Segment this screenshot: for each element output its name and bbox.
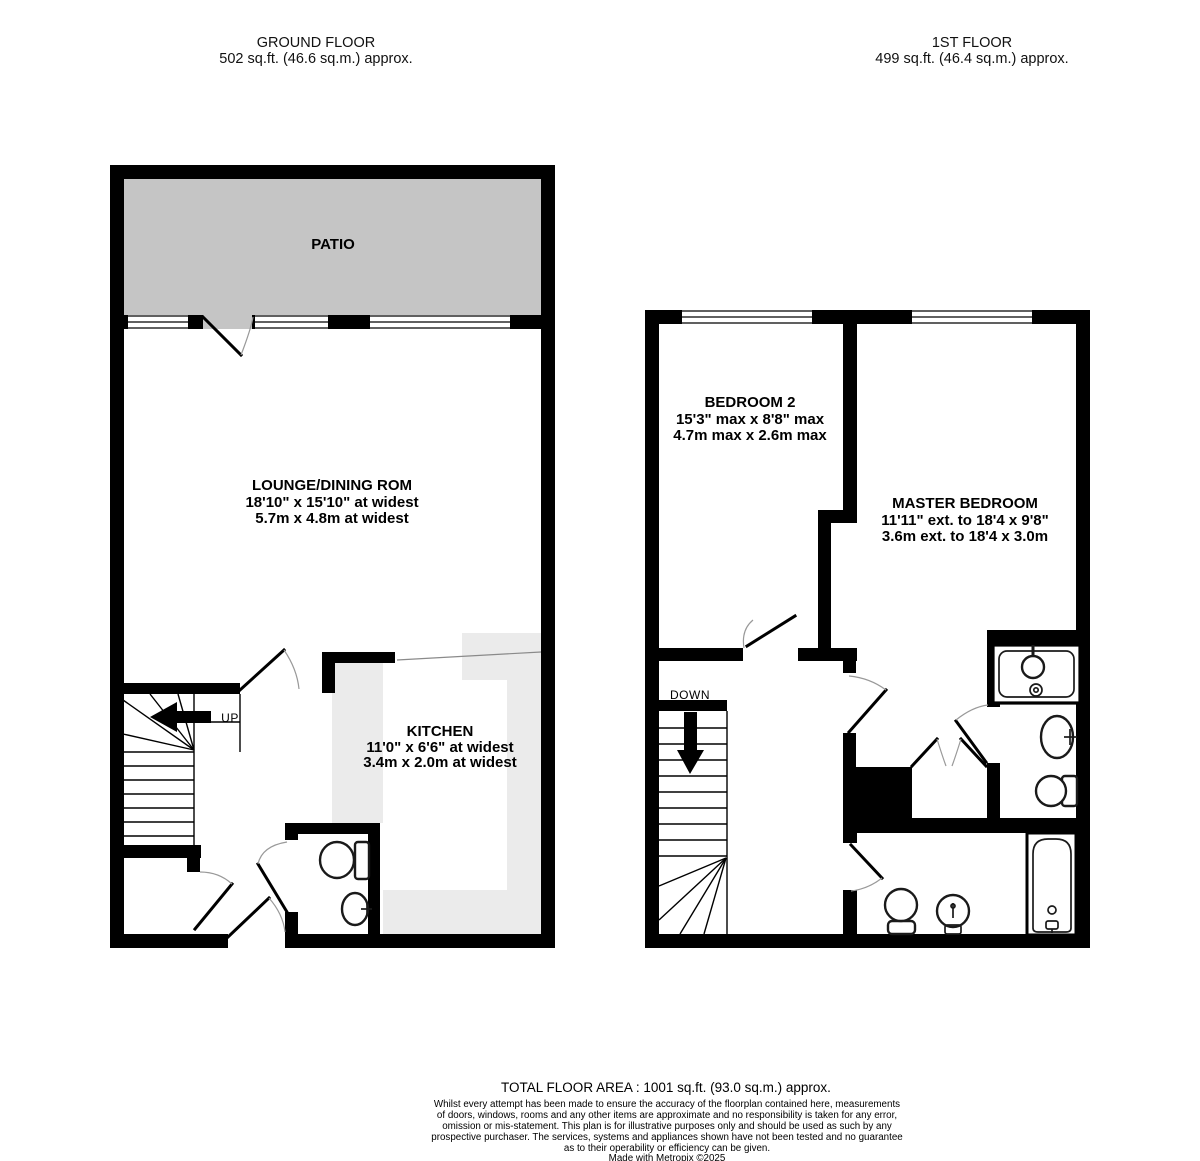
disclaimer-line: omission or mis-statement. This plan is … (442, 1121, 892, 1132)
shower-icon (993, 645, 1080, 703)
staircase-down: DOWN (659, 688, 727, 934)
first-floor-plan: DOWN (645, 310, 1090, 948)
disclaimer-line: prospective purchaser. The services, sys… (431, 1132, 903, 1143)
up-label: UP (221, 711, 239, 725)
lounge-label: LOUNGE/DINING ROM (252, 477, 412, 494)
sink-icon (1041, 716, 1077, 758)
window-icon (370, 315, 510, 329)
ground-floor-plan: PATIO (110, 165, 555, 948)
toilet-icon (885, 889, 917, 934)
kitchen-label: KITCHEN (407, 723, 474, 740)
lounge-dim-imperial: 18'10" x 15'10" at widest (245, 494, 418, 511)
master-bedroom-dim-metric: 3.6m ext. to 18'4 x 3.0m (882, 528, 1048, 545)
footer: TOTAL FLOOR AREA : 1001 sq.ft. (93.0 sq.… (431, 1080, 903, 1161)
staircase-up: UP (123, 694, 240, 845)
ensuite-door (956, 705, 988, 762)
hall-door (195, 872, 232, 929)
ground-floor-doors (195, 317, 299, 937)
bedroom2-dim-imperial: 15'3" max x 8'8" max (676, 411, 825, 428)
credit-line: Made with Metropix ©2025 (609, 1153, 726, 1161)
first-floor-title: 1ST FLOOR (932, 35, 1012, 51)
toilet-icon (320, 842, 369, 879)
front-door (228, 898, 285, 937)
window-icon (912, 310, 1032, 324)
toilet-icon (1036, 776, 1077, 806)
kitchen-door (240, 650, 299, 690)
wc-fixtures (320, 842, 372, 925)
sink-icon (342, 893, 372, 925)
floorplan-drawing: GROUND FLOOR 502 sq.ft. (46.6 sq.m.) app… (0, 0, 1200, 1161)
bedroom2-label: BEDROOM 2 (705, 394, 796, 411)
disclaimer-line: of doors, windows, rooms and any other i… (437, 1110, 897, 1121)
down-label: DOWN (670, 688, 710, 702)
kitchen-dim-metric: 3.4m x 2.0m at widest (363, 754, 516, 771)
first-floor-doors (743, 616, 988, 891)
bathroom-door (851, 845, 882, 891)
sink-icon (937, 895, 969, 934)
ensuite-fixtures (993, 645, 1080, 806)
window-icon (682, 310, 812, 324)
ground-floor-area: 502 sq.ft. (46.6 sq.m.) approx. (219, 51, 412, 67)
cupboard (850, 767, 912, 818)
first-floor-area: 499 sq.ft. (46.4 sq.m.) approx. (875, 51, 1068, 67)
disclaimer-line: Whilst every attempt has been made to en… (434, 1099, 900, 1110)
ground-floor-title: GROUND FLOOR (257, 35, 375, 51)
patio-label: PATIO (311, 236, 355, 253)
window-icon (128, 315, 188, 329)
floorplan-page: GROUND FLOOR 502 sq.ft. (46.6 sq.m.) app… (0, 0, 1200, 1161)
wardrobe-doors (912, 739, 986, 766)
patio: PATIO (110, 165, 555, 329)
ground-floor-windows (128, 315, 510, 329)
master-bedroom-door (849, 676, 886, 732)
total-floor-area: TOTAL FLOOR AREA : 1001 sq.ft. (93.0 sq.… (501, 1080, 831, 1095)
patio-door-gap-floor (203, 315, 252, 329)
bathtub-icon (1027, 833, 1076, 935)
down-arrow-icon (677, 712, 704, 774)
lounge-dim-metric: 5.7m x 4.8m at widest (255, 510, 408, 527)
bathroom-fixtures (885, 833, 1076, 935)
bedroom2-dim-metric: 4.7m max x 2.6m max (673, 427, 827, 444)
kitchen-area (332, 633, 541, 934)
bedroom2-door (743, 616, 795, 648)
master-bedroom-dim-imperial: 11'11" ext. to 18'4 x 9'8" (881, 512, 1049, 529)
window-icon (255, 315, 328, 329)
master-bedroom-label: MASTER BEDROOM (892, 495, 1038, 512)
